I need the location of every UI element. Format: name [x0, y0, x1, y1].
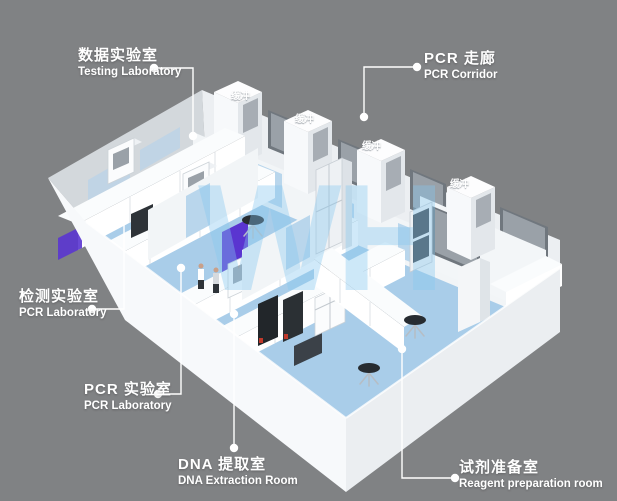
- buffer-room-label-4: 缓冲: [450, 176, 469, 190]
- buffer-room-label-1: 缓冲: [231, 88, 250, 102]
- glass-storage-cabinet: [410, 202, 432, 272]
- label-pcr-zh: PCR 实验室: [84, 378, 172, 399]
- label-dna-en: DNA Extraction Room: [178, 475, 298, 487]
- lab-floorplan-scene: WH: [0, 0, 617, 501]
- buffer-room-label-2: 缓冲: [295, 111, 314, 125]
- label-pcr-corridor: PCR 走廊 PCR Corridor: [424, 47, 497, 81]
- label-testing-zh: 数据实验室: [78, 44, 181, 65]
- label-corridor-zh: PCR 走廊: [424, 47, 497, 68]
- label-pcr-laboratory: PCR 实验室 PCR Laboratory: [84, 378, 172, 412]
- label-detection-en: PCR Laboratory: [19, 307, 107, 319]
- person-2: [213, 268, 219, 294]
- person-1: [198, 264, 204, 290]
- label-reagent-preparation-room: 试剂准备室 Reagent preparation room: [459, 456, 603, 490]
- refrigerator: [316, 158, 352, 254]
- label-testing-laboratory: 数据实验室 Testing Laboratory: [78, 44, 181, 78]
- buffer-room-label-3: 缓冲: [362, 138, 381, 152]
- label-pcr-en: PCR Laboratory: [84, 400, 172, 412]
- label-dna-zh: DNA 提取室: [178, 453, 298, 474]
- label-corridor-en: PCR Corridor: [424, 69, 497, 81]
- label-detection-laboratory: 检测实验室 PCR Laboratory: [19, 285, 107, 319]
- label-testing-en: Testing Laboratory: [78, 66, 181, 78]
- label-reagent-en: Reagent preparation room: [459, 478, 603, 490]
- label-reagent-zh: 试剂准备室: [459, 456, 603, 477]
- label-dna-extraction-room: DNA 提取室 DNA Extraction Room: [178, 453, 298, 487]
- label-detection-zh: 检测实验室: [19, 285, 107, 306]
